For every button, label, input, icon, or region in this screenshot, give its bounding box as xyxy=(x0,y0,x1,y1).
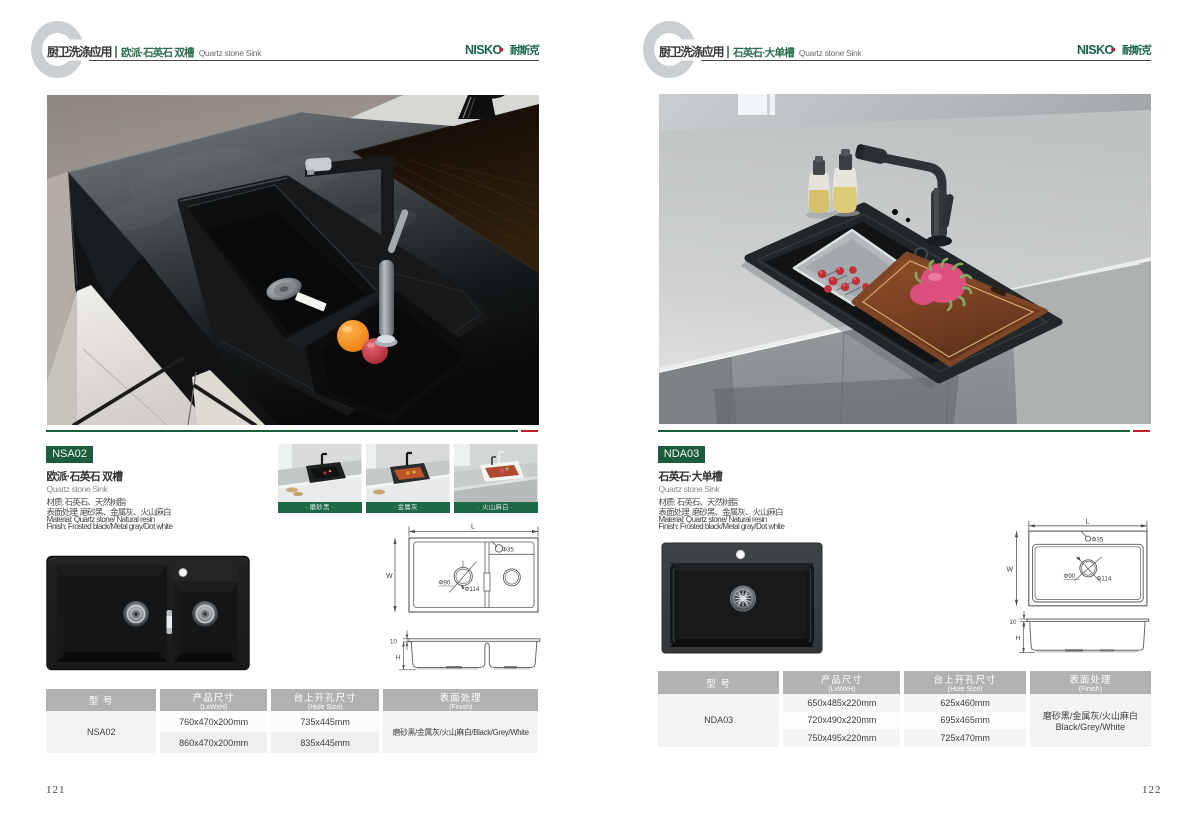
svg-text:NISKO: NISKO xyxy=(465,43,502,56)
svg-text:Φ90: Φ90 xyxy=(439,580,451,587)
svg-text:W: W xyxy=(1007,567,1014,574)
svg-text:L: L xyxy=(1086,519,1090,526)
svg-text:Φ90: Φ90 xyxy=(1064,573,1076,580)
svg-text:L: L xyxy=(471,524,475,531)
svg-text:Φ114: Φ114 xyxy=(465,586,480,593)
svg-text:Φ35: Φ35 xyxy=(502,547,514,554)
svg-text:10: 10 xyxy=(1010,619,1017,626)
svg-text:10: 10 xyxy=(390,639,397,646)
svg-text:W: W xyxy=(386,573,393,580)
svg-text:耐斯克: 耐斯克 xyxy=(1122,44,1152,56)
svg-text:耐斯克: 耐斯克 xyxy=(510,44,540,56)
svg-text:H: H xyxy=(1016,635,1021,642)
svg-text:Φ35: Φ35 xyxy=(1092,537,1104,544)
svg-text:Φ114: Φ114 xyxy=(1097,576,1112,583)
svg-text:H: H xyxy=(396,655,401,662)
svg-text:NISKO: NISKO xyxy=(1077,43,1114,56)
